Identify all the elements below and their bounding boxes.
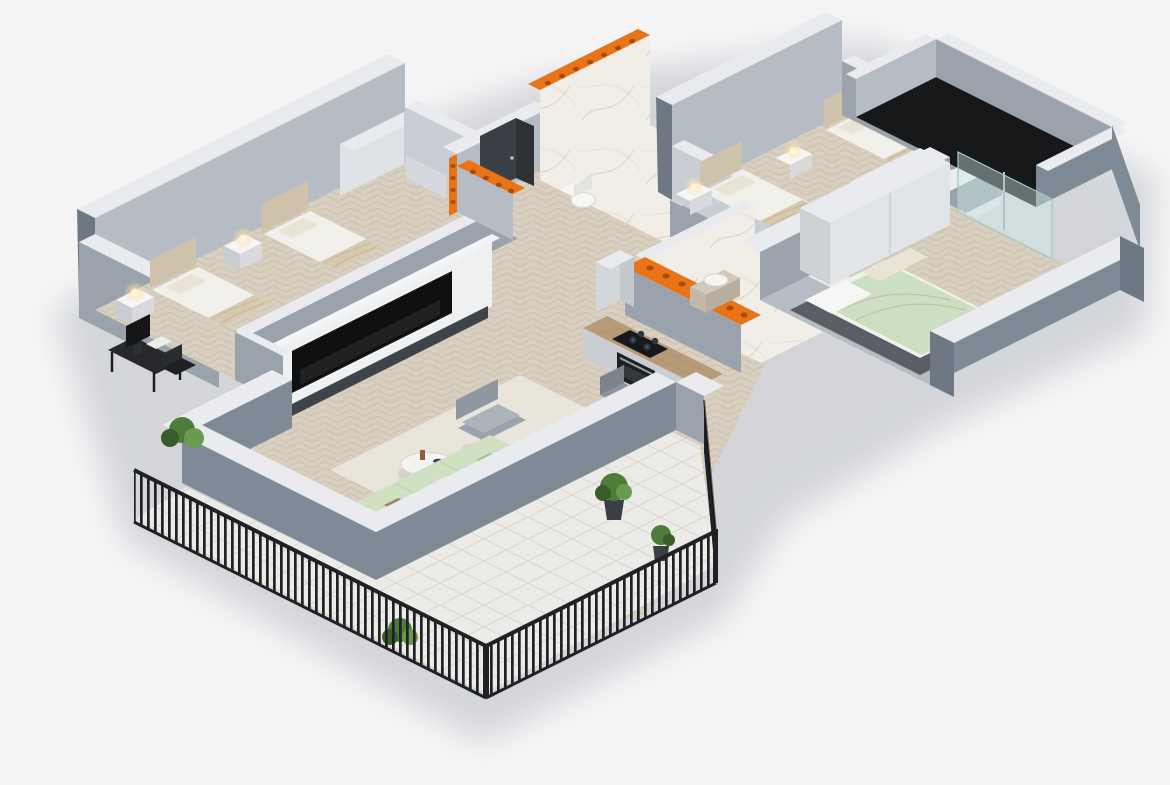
basin-icon — [704, 274, 728, 286]
railing-post-1 — [484, 644, 489, 698]
door-handle-icon — [510, 156, 514, 160]
wall-cut-orange-vertical — [449, 154, 457, 216]
entry-door-leaf — [516, 118, 534, 186]
railing-post-2 — [713, 529, 718, 583]
decor-vase-icon — [420, 450, 425, 460]
floor-plan-canvas — [0, 0, 1170, 785]
bedroom2-north-wall-cap — [656, 97, 672, 200]
apartment-isometric-render — [0, 0, 1170, 785]
